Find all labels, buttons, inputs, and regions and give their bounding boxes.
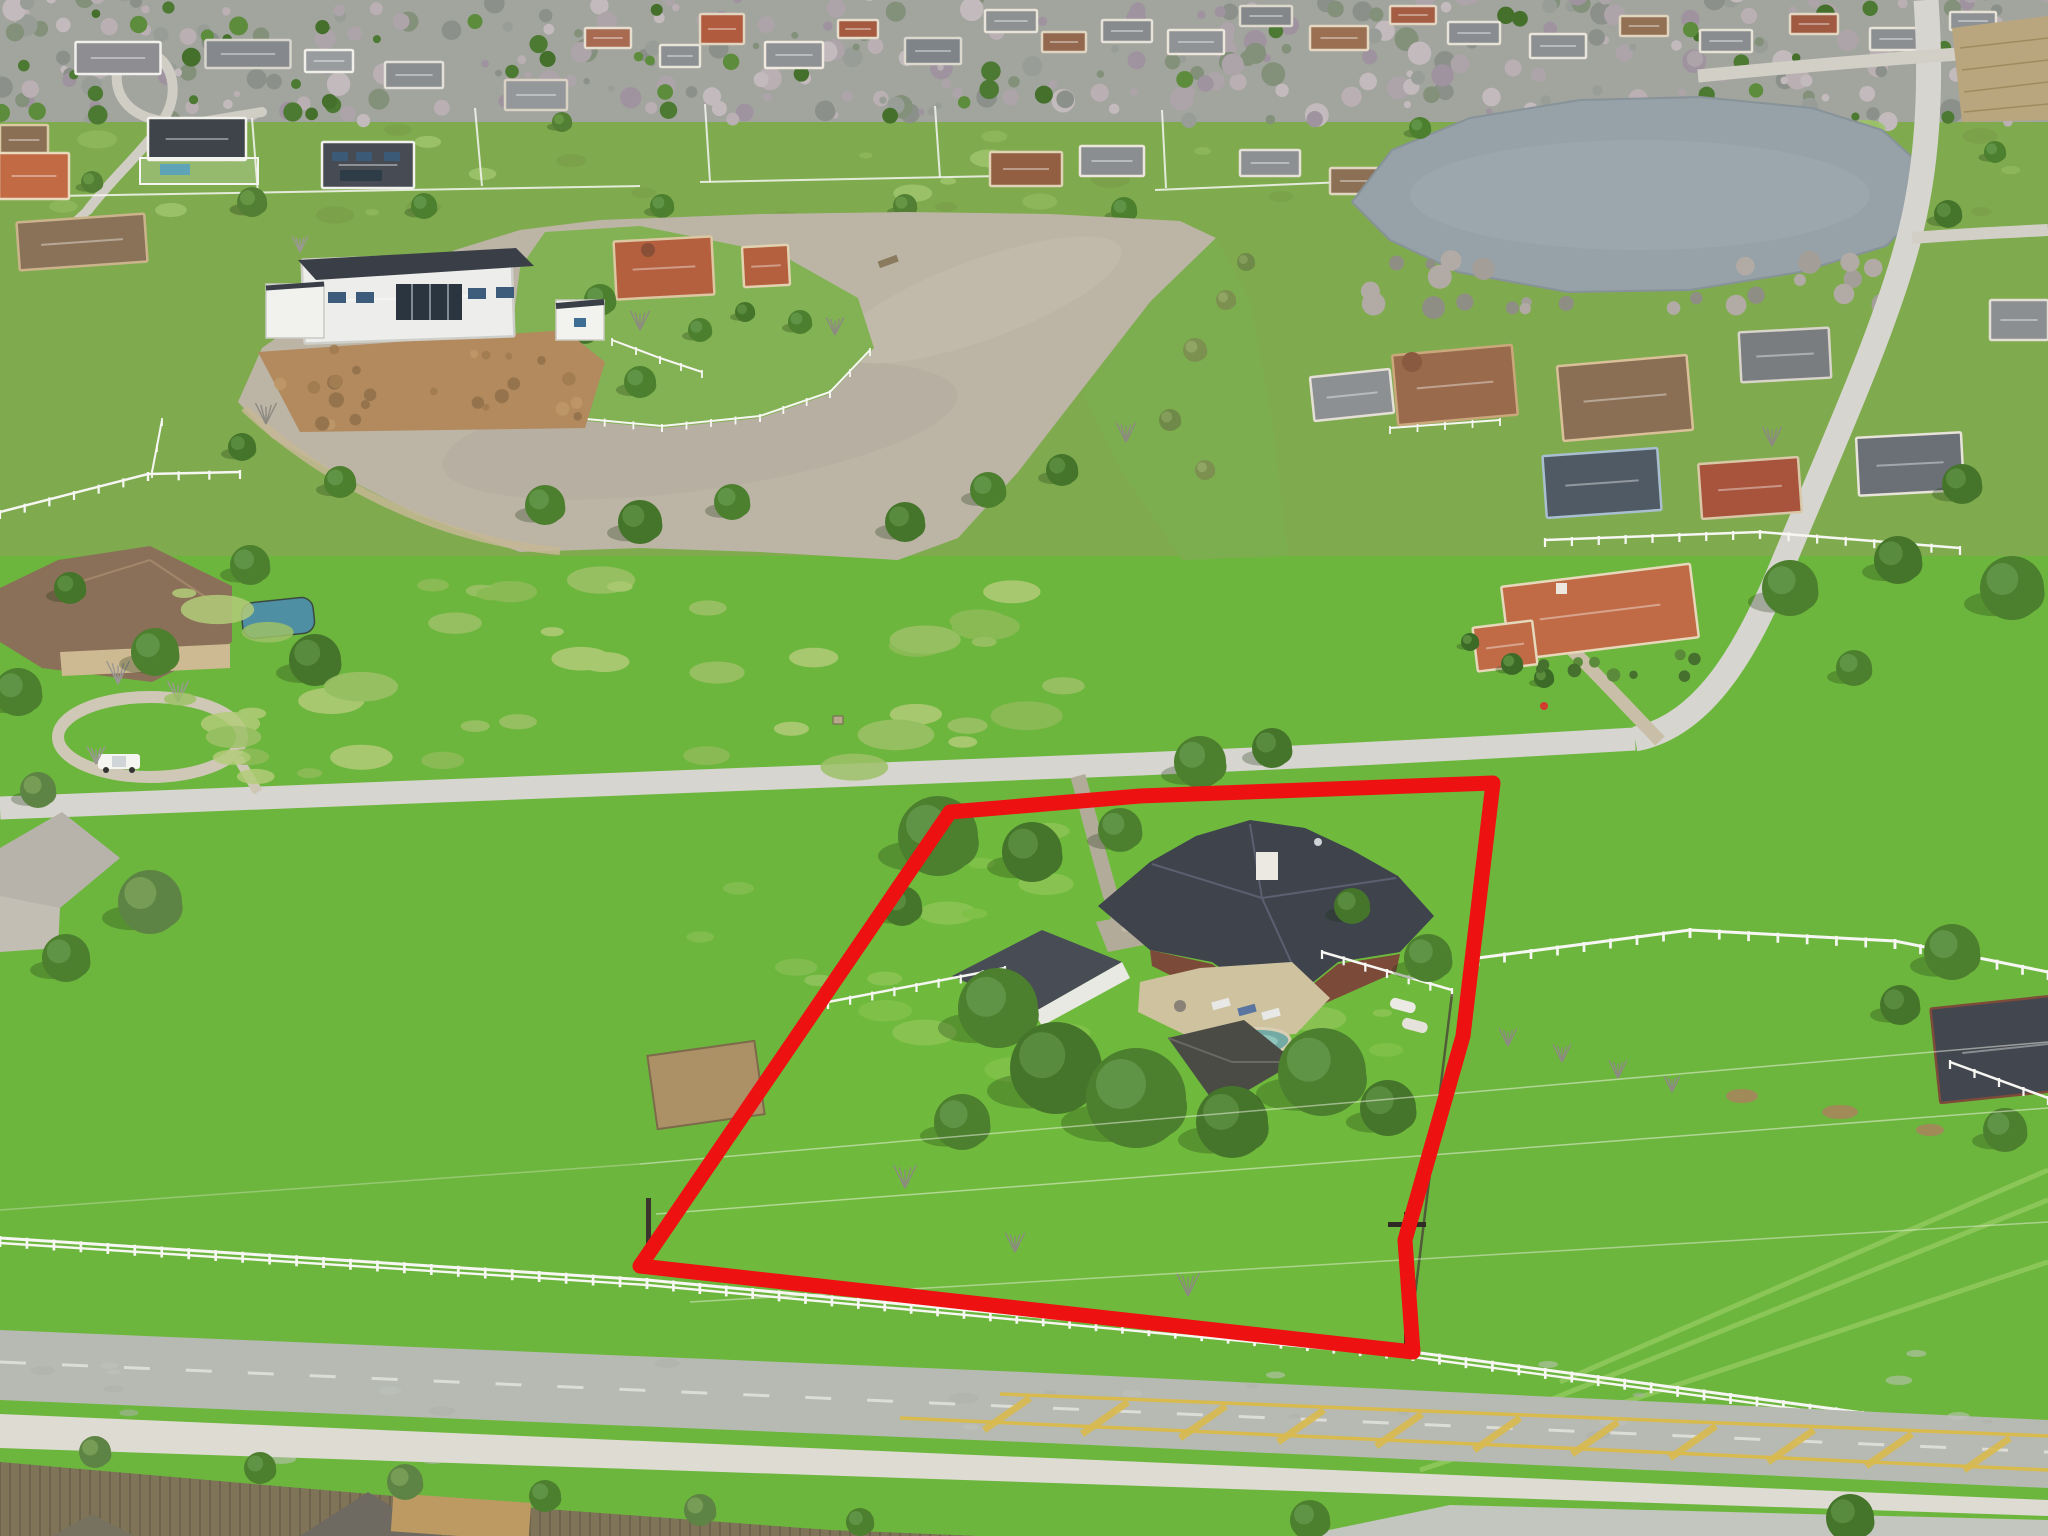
speckle — [88, 105, 108, 125]
tree-highlight — [234, 549, 254, 569]
speckle — [1130, 88, 1138, 96]
speckle — [101, 18, 118, 35]
speckle — [1747, 287, 1764, 304]
speckle — [1091, 84, 1109, 102]
neighborhood-house — [305, 50, 353, 72]
speckle — [308, 381, 321, 394]
truck-wheel — [129, 767, 135, 773]
speckle — [247, 69, 267, 89]
speckle — [77, 130, 117, 148]
tree-highlight — [554, 114, 564, 124]
tree-highlight — [1096, 1059, 1146, 1109]
speckle — [1165, 54, 1180, 69]
colonial-mansion — [148, 118, 246, 160]
speckle — [22, 80, 40, 98]
speckle — [1122, 1390, 1142, 1397]
speckle — [791, 32, 798, 39]
speckle — [820, 754, 888, 781]
neighborhood-house — [765, 42, 823, 68]
speckle — [6, 23, 24, 41]
speckle — [141, 5, 149, 13]
speckle — [495, 70, 502, 77]
speckle — [503, 22, 513, 32]
speckle — [482, 351, 491, 360]
speckle — [1741, 8, 1757, 24]
tree-highlight — [247, 1456, 263, 1472]
speckle — [991, 701, 1063, 730]
speckle — [1197, 11, 1205, 19]
speckle — [1482, 88, 1501, 107]
tree-highlight — [124, 877, 156, 909]
speckle — [28, 103, 45, 120]
tree-highlight — [1409, 939, 1433, 963]
speckle — [1327, 1, 1344, 18]
speckle — [979, 80, 999, 100]
speckle — [119, 1409, 138, 1416]
cabana-door — [574, 318, 586, 327]
tree-highlight — [1937, 203, 1951, 217]
speckle — [365, 209, 379, 215]
neighborhood-house — [1310, 369, 1394, 421]
speckle — [495, 389, 509, 403]
speckle — [1008, 76, 1019, 87]
speckle — [107, 1370, 120, 1375]
speckle — [180, 28, 197, 45]
modern-house-glass — [340, 170, 382, 181]
tree-highlight — [529, 489, 549, 509]
speckle — [1589, 657, 1600, 668]
speckle — [472, 396, 484, 408]
speckle — [1456, 293, 1473, 310]
speckle — [415, 136, 442, 148]
neighborhood-house — [206, 40, 291, 68]
speckle — [340, 106, 355, 121]
tan-estate — [1557, 355, 1693, 441]
speckle — [583, 78, 589, 84]
neighborhood-house — [1700, 30, 1752, 52]
neighborhood-house — [1530, 34, 1586, 58]
speckle — [858, 720, 935, 751]
speckle — [1866, 107, 1879, 120]
speckle — [1130, 2, 1146, 18]
speckle — [368, 89, 389, 110]
speckle — [468, 14, 483, 29]
tree-highlight — [1411, 119, 1422, 130]
tree-highlight — [940, 1100, 968, 1128]
speckle — [434, 100, 450, 116]
tree-highlight — [1008, 829, 1038, 859]
speckle — [1362, 49, 1377, 64]
speckle — [1307, 111, 1323, 127]
speckle — [329, 375, 343, 389]
speckle — [1038, 17, 1047, 26]
speckle — [370, 2, 383, 15]
speckle — [1794, 274, 1806, 286]
estate-turret — [1402, 352, 1422, 372]
speckle — [56, 18, 71, 33]
speckle — [469, 168, 497, 180]
tree-highlight — [57, 576, 73, 592]
speckle — [983, 580, 1040, 603]
tree-highlight — [737, 304, 747, 314]
neighborhood-house — [1240, 150, 1300, 176]
speckle — [1045, 1390, 1057, 1394]
speckle — [1688, 653, 1700, 665]
speckle — [357, 114, 370, 127]
speckle — [266, 74, 282, 90]
tree-highlight — [1986, 563, 2018, 595]
fire-pit — [1174, 1000, 1186, 1012]
speckle — [1097, 70, 1105, 78]
speckle — [1568, 664, 1582, 678]
neighborhood-house — [1080, 146, 1144, 176]
speckle — [1269, 191, 1293, 202]
speckle — [237, 769, 275, 784]
speckle — [958, 96, 971, 109]
speckle — [1035, 86, 1053, 104]
speckle — [1864, 259, 1882, 277]
speckle — [537, 356, 546, 365]
speckle — [1690, 292, 1702, 304]
speckle — [352, 366, 361, 375]
speckle — [1505, 59, 1522, 76]
speckle — [1288, 1414, 1301, 1418]
modern-house-window — [356, 152, 372, 161]
speckle — [189, 95, 198, 104]
speckle — [1906, 1350, 1926, 1357]
speckle — [1736, 257, 1755, 276]
tree-highlight — [1179, 742, 1205, 768]
tree-highlight — [622, 505, 644, 527]
speckle — [1261, 62, 1285, 86]
tree-highlight — [391, 1468, 409, 1486]
speckle — [291, 79, 301, 89]
speckle — [660, 102, 677, 119]
speckle — [1042, 677, 1085, 694]
tree-highlight — [1185, 341, 1197, 353]
tree-highlight — [1946, 468, 1966, 488]
aerial-property-photo — [0, 0, 2048, 1536]
speckle — [620, 87, 641, 108]
tree-highlight — [1503, 655, 1514, 666]
speckle — [543, 24, 554, 35]
neighborhood-house — [1990, 300, 2048, 340]
neighborhood-house — [585, 28, 631, 48]
speckle — [505, 65, 519, 79]
neighborhood-house — [385, 62, 443, 88]
speckle — [723, 54, 739, 70]
speckle — [1947, 1412, 1969, 1420]
speckle — [393, 13, 410, 30]
speckle — [1472, 258, 1494, 280]
speckle — [333, 4, 345, 16]
speckle — [88, 86, 103, 101]
speckle — [1512, 11, 1528, 27]
speckle — [1667, 301, 1681, 315]
neighborhood-house — [1620, 16, 1668, 36]
neighborhood-house — [985, 10, 1037, 32]
speckle — [556, 402, 570, 416]
tree-highlight — [1161, 411, 1172, 422]
speckle — [686, 931, 714, 942]
speckle — [1837, 30, 1858, 51]
speckle — [654, 1359, 679, 1368]
speckle — [1538, 659, 1549, 670]
colonial-pool-court — [140, 158, 258, 184]
tree-highlight — [690, 321, 702, 333]
speckle — [541, 627, 564, 636]
speckle — [754, 72, 769, 87]
mansion-window — [356, 292, 374, 303]
truck-wheel — [103, 767, 109, 773]
speckle — [952, 613, 1020, 640]
speckle — [229, 17, 248, 36]
neighborhood-house — [1390, 6, 1436, 24]
speckle — [935, 202, 957, 212]
speckle — [1246, 1384, 1258, 1388]
speckle — [1800, 75, 1812, 87]
speckle — [645, 102, 657, 114]
mansion-window — [328, 292, 346, 303]
speckle — [315, 20, 329, 34]
tree-highlight — [1884, 989, 1904, 1009]
speckle — [1633, 1393, 1646, 1397]
speckle — [1362, 292, 1385, 315]
speckle — [442, 20, 462, 40]
speckle — [315, 416, 329, 430]
speckle — [1675, 649, 1686, 660]
speckle — [886, 2, 906, 22]
speckle — [283, 102, 302, 121]
speckle — [324, 672, 398, 702]
speckle — [1128, 51, 1146, 69]
mansion-glass-core — [396, 284, 462, 320]
speckle — [1222, 53, 1244, 75]
speckle — [651, 4, 663, 16]
speckle — [1834, 284, 1855, 305]
mansion-window — [468, 288, 486, 299]
tree-highlight — [240, 190, 255, 205]
speckle — [330, 745, 392, 770]
brush-pile — [1822, 1105, 1858, 1119]
speckle — [723, 882, 754, 894]
speckle — [524, 71, 531, 78]
speckle — [1629, 671, 1637, 679]
speckle — [1726, 295, 1747, 316]
speckle — [461, 720, 490, 732]
utility-box — [833, 716, 843, 724]
villa-chimney — [1556, 583, 1567, 594]
speckle — [1559, 296, 1574, 311]
right-edge-house — [1930, 993, 2048, 1103]
speckle — [1022, 194, 1057, 210]
speckle — [18, 60, 30, 72]
modern-house-window — [384, 152, 400, 161]
speckle — [607, 581, 633, 591]
speckle — [92, 9, 101, 18]
speckle — [1197, 75, 1213, 91]
villa-turret — [641, 243, 655, 257]
speckle — [1971, 207, 1992, 216]
tree-highlight — [966, 977, 1006, 1017]
speckle — [608, 85, 614, 91]
tree-highlight — [1930, 930, 1958, 958]
tree-highlight — [24, 776, 42, 794]
tree-highlight — [1294, 1504, 1314, 1524]
speckle — [1109, 104, 1119, 114]
speckle — [1678, 89, 1686, 97]
speckle — [815, 100, 836, 121]
speckle — [571, 397, 583, 409]
orange-tile-house — [0, 153, 69, 199]
speckle — [1002, 89, 1018, 105]
speckle — [1840, 253, 1859, 272]
tree-highlight — [1987, 1113, 2009, 1135]
speckle — [1506, 301, 1519, 314]
speckle — [657, 84, 673, 100]
tree-highlight — [1287, 1038, 1331, 1082]
speckle — [1431, 64, 1453, 86]
truck-cab — [112, 756, 126, 767]
speckle — [868, 38, 884, 54]
modern-house-window — [332, 152, 348, 161]
speckle — [1822, 94, 1830, 102]
speckle — [507, 377, 520, 390]
speckle — [1531, 67, 1546, 82]
speckle — [1245, 43, 1266, 64]
brush-pile — [1916, 1124, 1944, 1136]
speckle — [1629, 44, 1636, 51]
speckle — [329, 392, 344, 407]
speckle — [1181, 113, 1196, 128]
tree-highlight — [790, 313, 802, 325]
speckle — [242, 622, 294, 643]
speckle — [322, 94, 337, 109]
speckle — [1875, 65, 1887, 77]
tree-highlight — [687, 1498, 703, 1514]
speckle — [1369, 7, 1383, 21]
speckle — [1230, 74, 1247, 91]
tree-highlight — [1338, 892, 1356, 910]
speckle — [305, 108, 318, 121]
speckle — [940, 178, 956, 185]
chimney — [1256, 852, 1278, 880]
speckle — [329, 344, 339, 354]
speckle — [1428, 265, 1452, 289]
speckle — [373, 35, 381, 43]
speckle — [853, 44, 860, 51]
speckle — [421, 752, 464, 769]
neighborhood-house — [0, 125, 48, 155]
gray-house — [1739, 328, 1831, 383]
neighborhood-house — [1042, 32, 1086, 52]
speckle — [1282, 44, 1292, 54]
speckle — [842, 47, 862, 67]
speckle — [632, 187, 657, 198]
speckle — [562, 372, 576, 386]
speckle — [890, 625, 961, 653]
neighborhood-house — [1102, 20, 1152, 42]
speckle — [1859, 86, 1875, 102]
speckle — [1022, 56, 1042, 76]
lake-gazebo — [742, 245, 790, 287]
speckle — [726, 113, 739, 126]
speckle — [1266, 115, 1275, 124]
speckle — [1359, 73, 1377, 91]
speckle — [213, 750, 251, 765]
tree-highlight — [82, 1440, 98, 1456]
speckle — [1749, 83, 1763, 97]
speckle — [181, 595, 254, 624]
speckle — [348, 26, 362, 40]
tree-highlight — [294, 640, 320, 666]
speckle — [1411, 71, 1425, 85]
speckle — [430, 387, 438, 395]
speckle — [470, 350, 478, 358]
speckle — [481, 60, 489, 68]
speckle — [1941, 111, 1954, 124]
speckle — [1266, 1372, 1285, 1379]
speckle — [842, 91, 853, 102]
speckle — [428, 612, 482, 633]
speckle — [206, 726, 262, 748]
speckle — [686, 86, 698, 98]
speckle — [327, 72, 351, 96]
speckle — [1423, 86, 1440, 103]
tree-highlight — [83, 173, 94, 184]
neighborhood-house — [1448, 22, 1500, 44]
speckle — [162, 1, 174, 13]
modern-white-house — [322, 142, 414, 188]
speckle — [1275, 83, 1288, 96]
speckle — [103, 1385, 123, 1392]
tree-highlight — [47, 939, 71, 963]
speckle — [689, 661, 744, 683]
tree-highlight — [849, 1511, 863, 1525]
speckle — [384, 124, 411, 136]
neighborhood-house — [76, 42, 161, 74]
speckle — [1389, 256, 1404, 271]
tree-highlight — [1463, 635, 1472, 644]
speckle — [962, 1424, 979, 1430]
speckle — [683, 746, 730, 765]
speckle — [1111, 45, 1119, 53]
neighborhood-house — [1310, 26, 1368, 50]
speckle — [130, 16, 147, 33]
tree-highlight — [1840, 654, 1858, 672]
satellite-dish — [1314, 838, 1322, 846]
speckle — [775, 959, 818, 976]
speckle — [1341, 87, 1361, 107]
speckle — [1056, 90, 1074, 108]
tree-highlight — [627, 370, 643, 386]
speckle — [164, 693, 197, 706]
speckle — [774, 722, 809, 736]
speckle — [952, 88, 963, 99]
speckle — [297, 768, 322, 778]
speckle — [182, 48, 201, 67]
pond-streak — [1410, 140, 1870, 250]
cabana-roofline — [556, 302, 604, 306]
neighborhood-house — [990, 152, 1062, 186]
speckle — [574, 29, 583, 38]
speckle — [937, 64, 943, 70]
neighborhood-house — [505, 80, 567, 110]
speckle — [2001, 166, 2020, 174]
speckle — [476, 587, 509, 600]
brush-pile — [1726, 1089, 1758, 1103]
speckle — [1679, 670, 1690, 681]
